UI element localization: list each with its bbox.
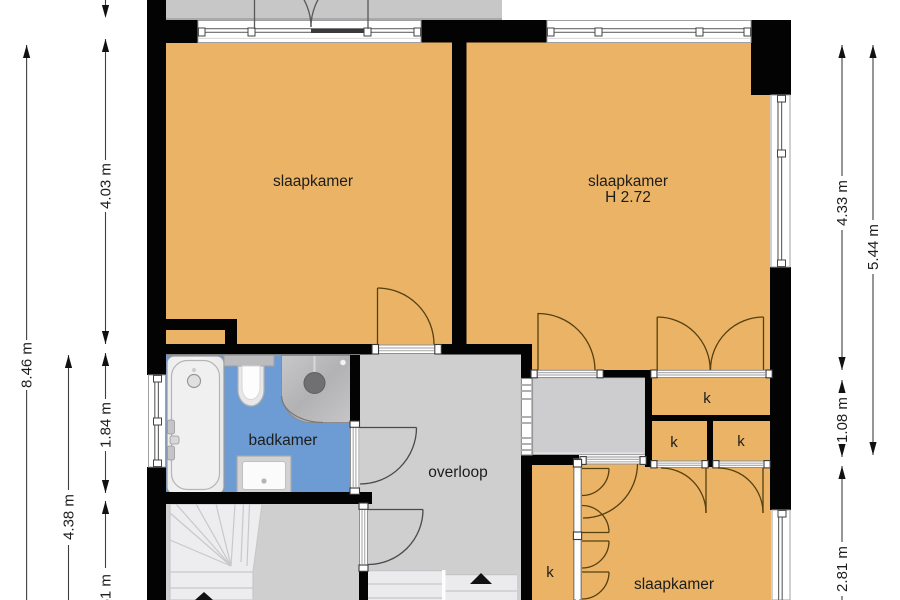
svg-text:slaapkamer: slaapkamer [588,173,668,190]
svg-text:k: k [737,433,745,450]
svg-text:slaapkamer: slaapkamer [634,576,714,593]
svg-text:4.38 m: 4.38 m [61,494,78,540]
svg-text:k: k [670,434,678,451]
svg-text:4.33 m: 4.33 m [834,180,851,226]
svg-text:k: k [546,564,554,581]
svg-text:8.46 m: 8.46 m [19,342,36,388]
svg-text:3.51 m: 3.51 m [98,574,115,600]
svg-text:H 2.72: H 2.72 [605,189,651,206]
svg-text:k: k [703,390,711,407]
svg-text:2.81 m: 2.81 m [834,546,851,592]
svg-text:overloop: overloop [428,464,487,481]
svg-text:4.03 m: 4.03 m [98,163,115,209]
svg-text:1.08 m: 1.08 m [834,397,851,443]
svg-text:5.44 m: 5.44 m [865,224,882,270]
svg-text:1.84 m: 1.84 m [98,402,115,448]
svg-text:slaapkamer: slaapkamer [273,173,353,190]
svg-text:badkamer: badkamer [249,432,318,449]
